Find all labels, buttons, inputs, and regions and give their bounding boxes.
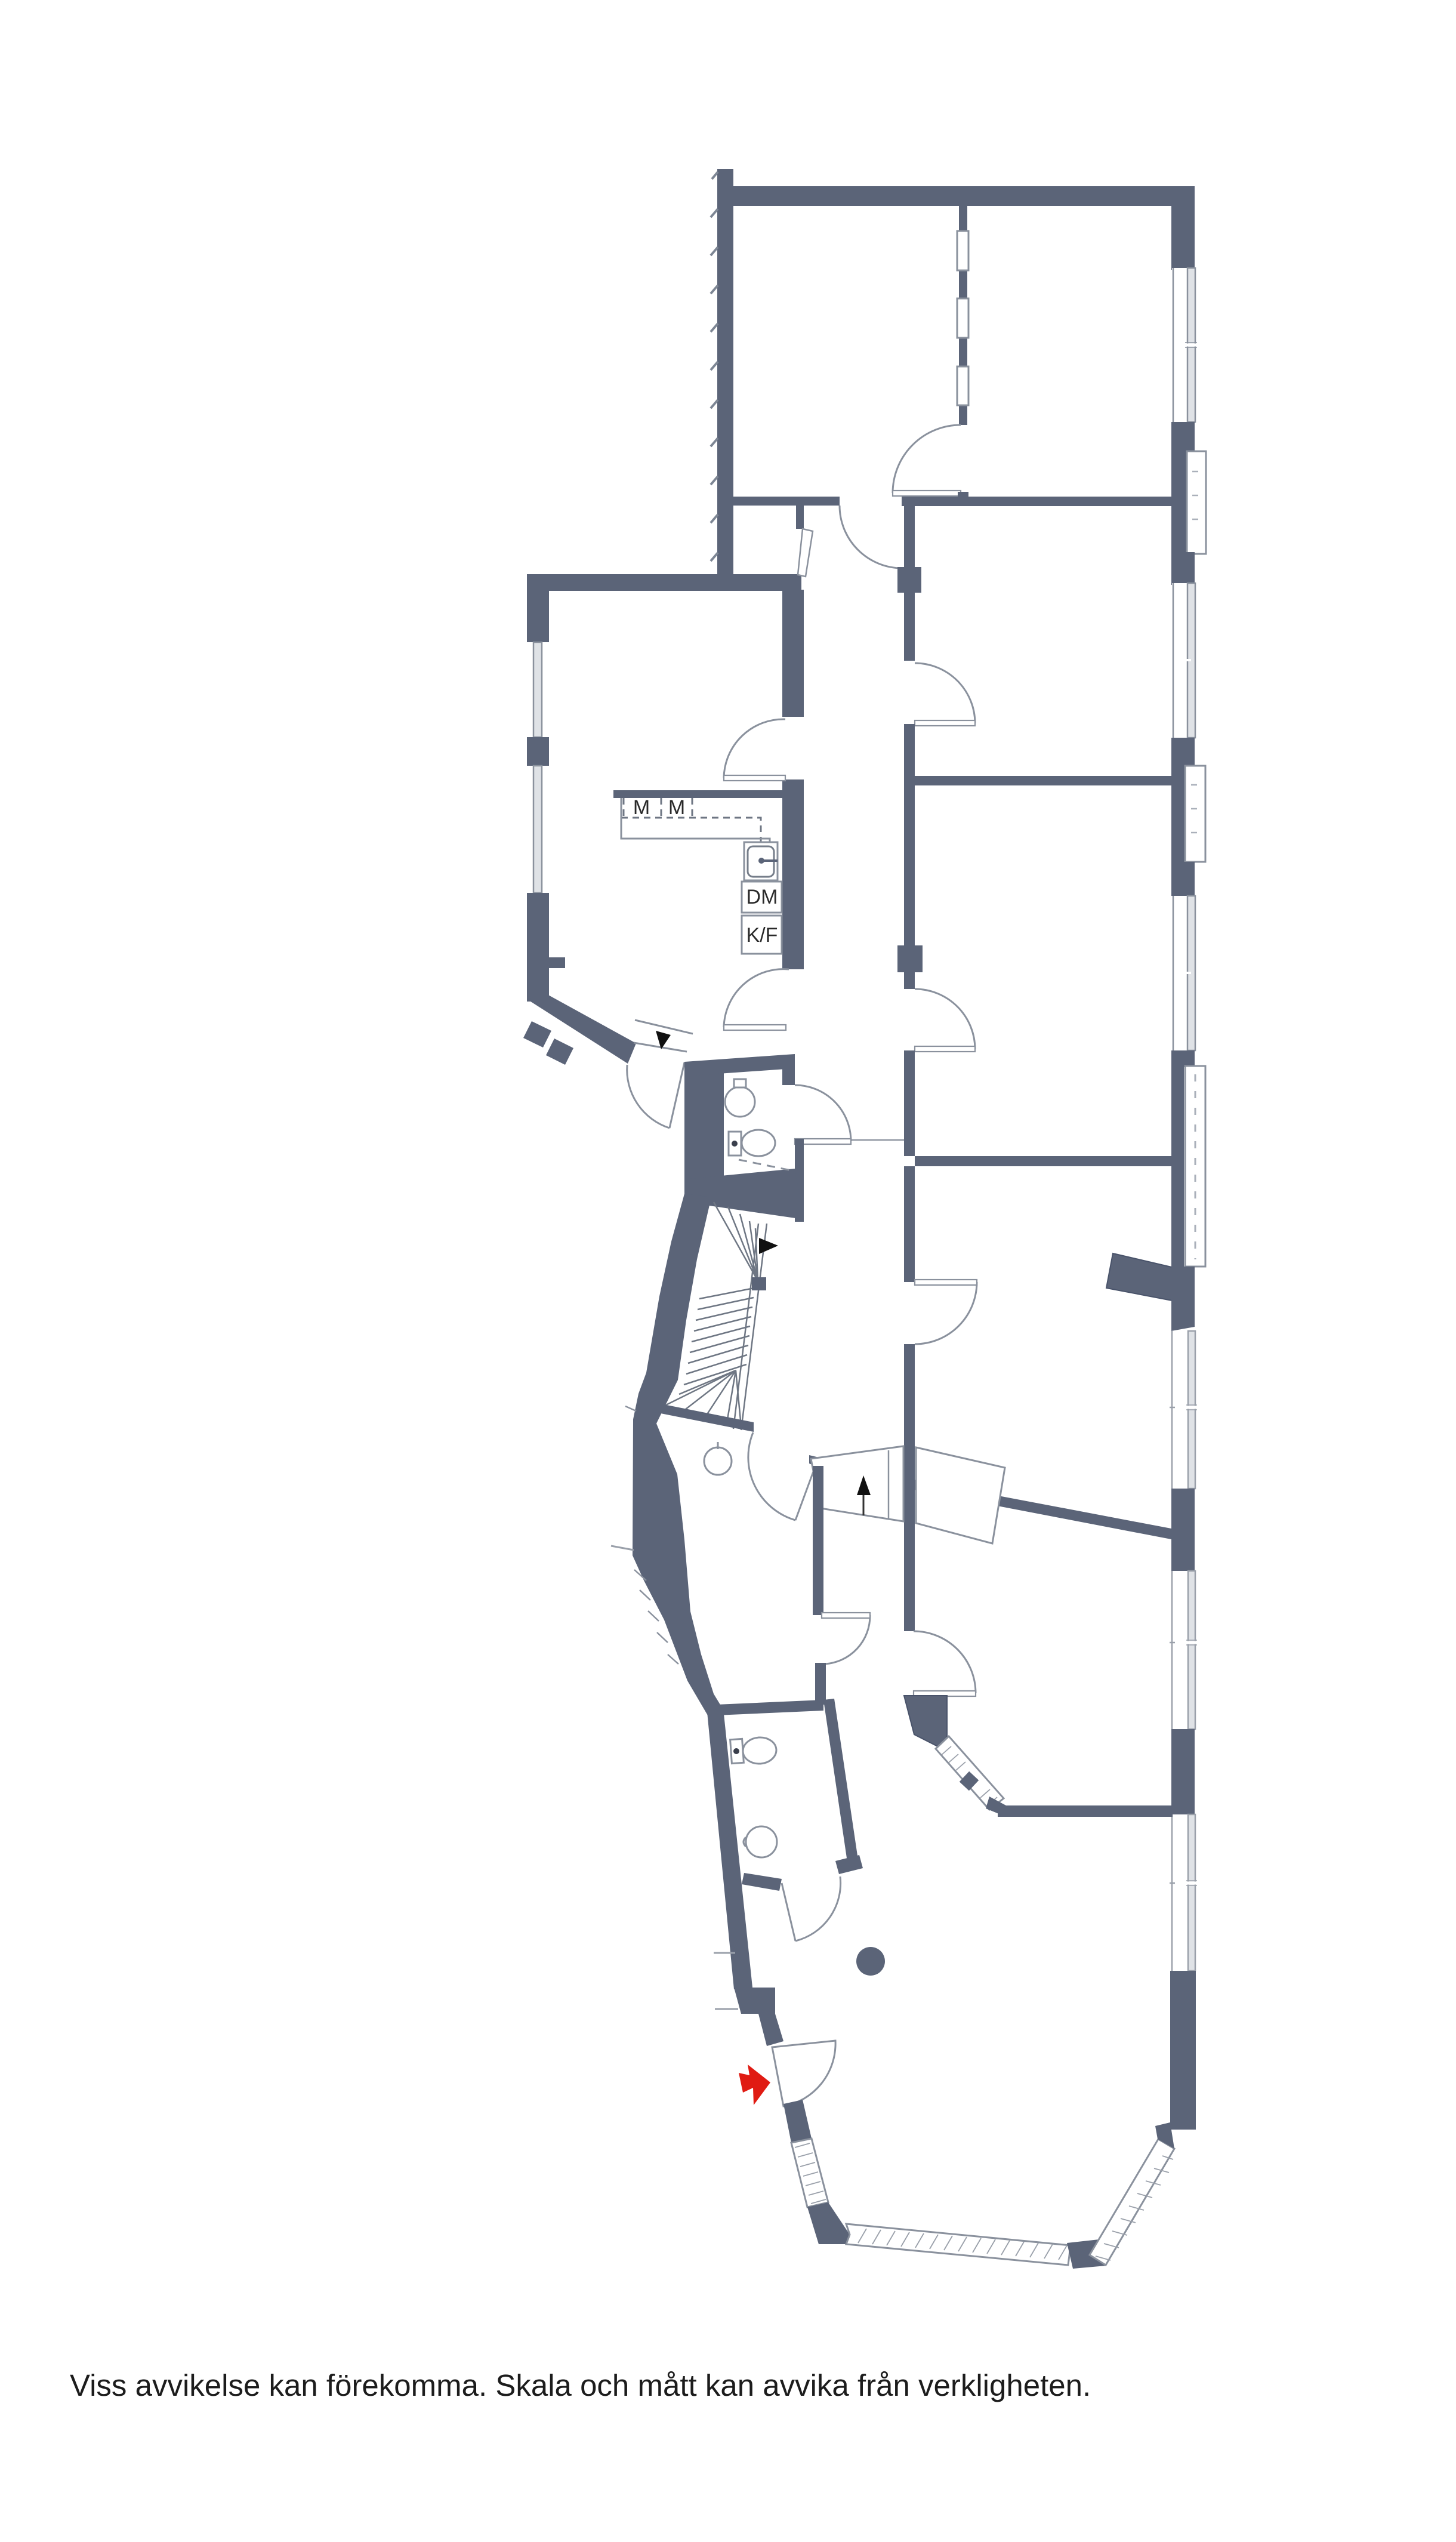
svg-text:M: M [633,796,650,819]
svg-text:DM: DM [746,886,778,908]
svg-text:K/F: K/F [746,924,778,947]
svg-text:M: M [668,796,685,819]
svg-text:Viss avvikelse kan förekomma.: Viss avvikelse kan förekomma. Skala och … [70,2368,1091,2402]
